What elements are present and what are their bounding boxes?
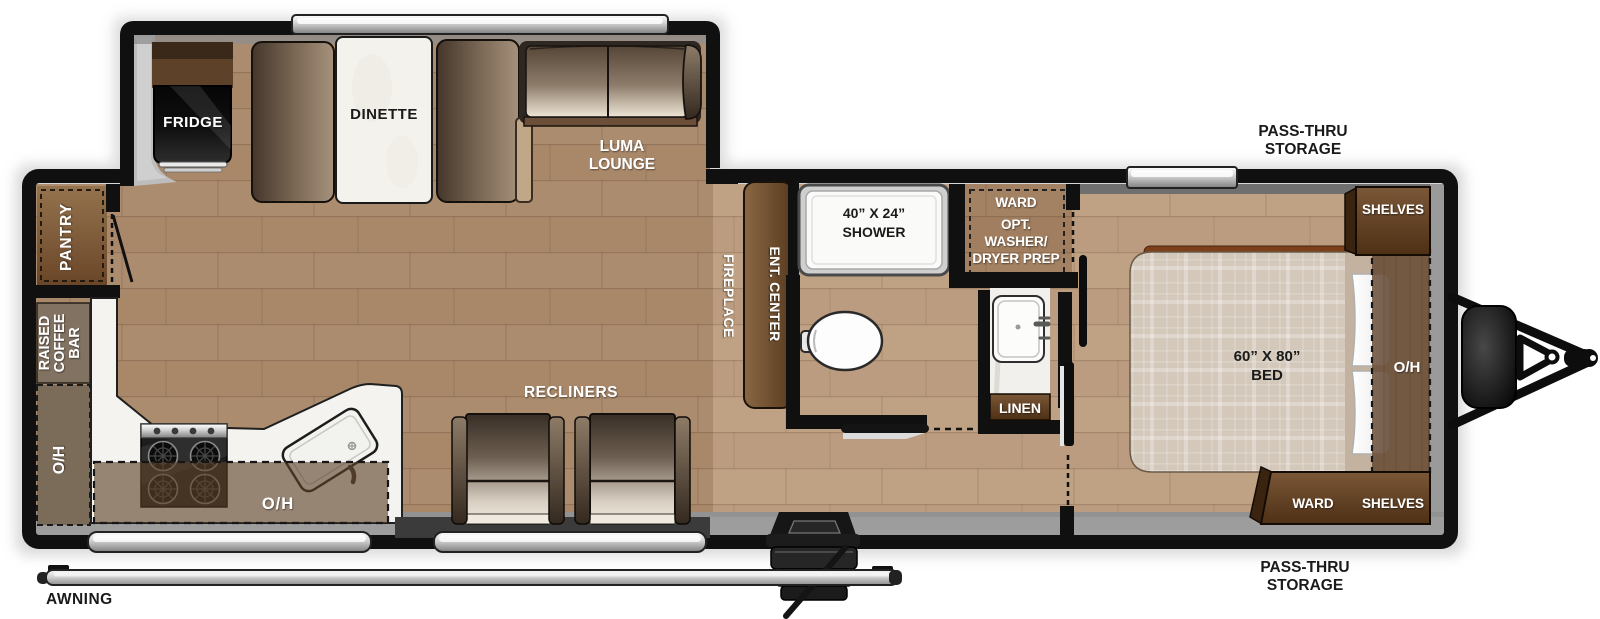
svg-text:FRIDGE: FRIDGE <box>163 114 223 131</box>
svg-text:LINEN: LINEN <box>999 400 1041 416</box>
svg-text:RAISED: RAISED <box>37 316 53 371</box>
svg-text:O/H: O/H <box>1394 359 1421 376</box>
svg-text:ENT. CENTER: ENT. CENTER <box>767 246 783 341</box>
svg-text:40” X 24”: 40” X 24” <box>843 205 905 221</box>
svg-text:FIREPLACE: FIREPLACE <box>721 254 737 338</box>
svg-text:BAR: BAR <box>67 327 83 359</box>
svg-text:O/H: O/H <box>51 446 68 474</box>
svg-text:60” X 80”: 60” X 80” <box>1234 348 1301 365</box>
svg-text:SHELVES: SHELVES <box>1362 202 1424 217</box>
svg-text:PASS-THRU: PASS-THRU <box>1258 123 1347 140</box>
svg-text:AWNING: AWNING <box>46 591 113 608</box>
svg-text:STORAGE: STORAGE <box>1267 577 1343 594</box>
svg-text:PASS-THRU: PASS-THRU <box>1260 559 1349 576</box>
svg-text:BED: BED <box>1251 367 1283 384</box>
svg-text:SHELVES: SHELVES <box>1362 496 1424 511</box>
svg-text:O/H: O/H <box>262 495 294 513</box>
svg-text:WASHER/: WASHER/ <box>984 234 1047 249</box>
svg-text:LUMA: LUMA <box>600 138 645 155</box>
svg-text:DRYER PREP: DRYER PREP <box>972 251 1059 266</box>
svg-text:PANTRY: PANTRY <box>58 203 75 271</box>
svg-text:WARD: WARD <box>995 195 1036 210</box>
svg-text:STORAGE: STORAGE <box>1265 141 1341 158</box>
svg-text:RECLINERS: RECLINERS <box>524 384 618 401</box>
svg-text:SHOWER: SHOWER <box>843 224 906 240</box>
svg-text:COFFEE: COFFEE <box>52 313 68 372</box>
svg-text:LOUNGE: LOUNGE <box>589 156 655 173</box>
svg-text:OPT.: OPT. <box>1001 217 1031 232</box>
svg-text:DINETTE: DINETTE <box>350 106 418 123</box>
svg-text:WARD: WARD <box>1292 496 1333 511</box>
